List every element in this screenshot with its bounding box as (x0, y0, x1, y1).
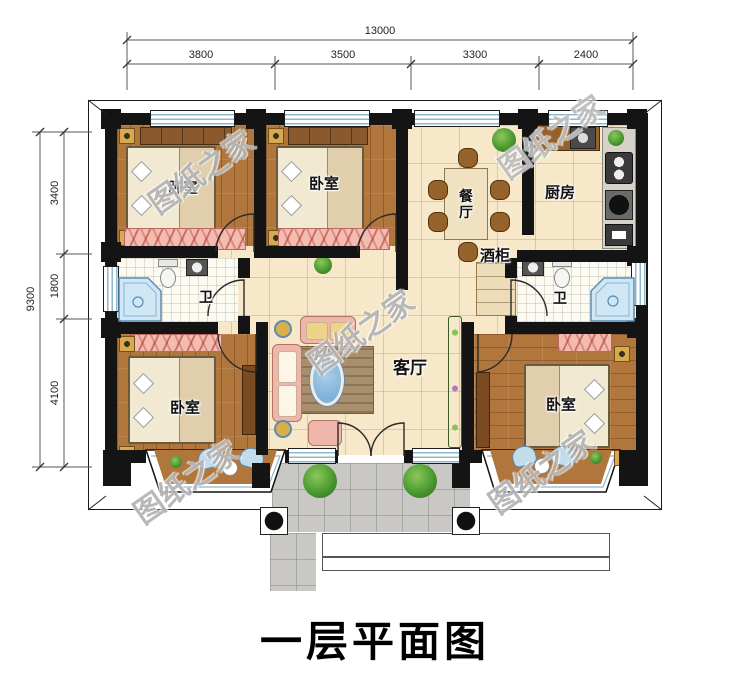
wall-bathL-right-b (238, 316, 250, 334)
floor-plan-sheet: 卧室 卧室 餐厅 厨房 酒柜 卫 卫 客厅 卧室 卧室 13000 3800 3… (0, 0, 750, 680)
nightstand (614, 346, 630, 362)
dresser (476, 372, 490, 448)
porch-bush (303, 464, 337, 498)
wall-under-bed2 (258, 246, 360, 258)
dim-top-seg-4: 2400 (572, 49, 600, 61)
nightstand (119, 128, 135, 144)
corner-pier (103, 450, 131, 486)
pillow (281, 161, 302, 182)
kitchen-basin (605, 152, 633, 184)
stove (605, 190, 633, 220)
bathroom-left-floor (117, 258, 238, 322)
kitchen-plant (608, 130, 624, 146)
entry-porch (272, 463, 470, 532)
dining-chair (490, 212, 510, 232)
pier (627, 109, 647, 129)
dining-chair (458, 148, 478, 168)
label-bathroom-right: 卫 (553, 288, 567, 308)
side-table (274, 320, 292, 338)
label-kitchen: 厨房 (545, 182, 575, 203)
label-living: 客厅 (393, 354, 427, 379)
porch-bush (403, 464, 437, 498)
pier (101, 242, 121, 262)
dim-top-seg-2: 3500 (329, 49, 357, 61)
front-step-2 (322, 557, 610, 571)
wall-bed1-bed2 (254, 113, 266, 258)
wall-bathL-right-a (238, 258, 250, 278)
dim-left-seg-3: 4100 (49, 379, 61, 407)
cushion (278, 385, 297, 417)
pillow (133, 407, 154, 428)
window-living-left (288, 448, 336, 464)
dim-tick (60, 315, 68, 323)
potted-plant (314, 256, 332, 274)
side-table (274, 420, 292, 438)
dim-total-width: 13000 (363, 25, 398, 37)
dim-tick (535, 60, 543, 68)
wall-hall-bedBL (105, 322, 218, 334)
dining-chair (490, 180, 510, 200)
window-bathroom-left (103, 266, 119, 312)
dim-tick (36, 463, 44, 471)
pier (246, 109, 266, 129)
dining-chair (428, 180, 448, 200)
dresser (242, 365, 256, 435)
window-bedroom-top-middle (284, 110, 370, 127)
label-bedroom-bottom-left: 卧室 (170, 397, 200, 418)
sofa (272, 344, 302, 422)
sink (186, 259, 208, 276)
dim-left-seg-2: 1800 (49, 272, 61, 300)
wall-living-bedBL (256, 322, 268, 455)
front-step-1 (322, 533, 610, 557)
window-living-right (412, 448, 460, 464)
dim-left-seg-1: 3400 (49, 179, 61, 207)
pier (101, 109, 121, 129)
dim-top-seg-1: 3800 (187, 49, 215, 61)
dim-tick (60, 128, 68, 136)
oven (605, 224, 633, 246)
label-bedroom-bottom-right: 卧室 (546, 394, 576, 415)
dim-tick (629, 60, 637, 68)
dim-tick (123, 60, 131, 68)
nightstand (268, 128, 284, 144)
decorative-plant-strip (448, 316, 462, 448)
pillow (584, 413, 605, 434)
toilet-bowl (554, 268, 570, 288)
dim-tick (60, 250, 68, 258)
wall-bed2-dining (396, 113, 408, 290)
wall-under-bed1 (105, 246, 218, 258)
wardrobe (288, 127, 368, 145)
dim-total-height: 9300 (25, 285, 37, 313)
footstool (308, 420, 342, 446)
porch-column (452, 507, 480, 535)
dim-tick (60, 463, 68, 471)
dim-tick (36, 128, 44, 136)
label-wine-cabinet: 酒柜 (480, 245, 510, 266)
dim-tick (123, 36, 131, 44)
bedroom-rug (132, 334, 222, 352)
window-bedroom-top-left (150, 110, 235, 127)
pillow (133, 373, 154, 394)
porch-column (260, 507, 288, 535)
porch-stub (252, 463, 270, 488)
dim-tick (271, 60, 279, 68)
dining-chair (428, 212, 448, 232)
dim-tick (407, 60, 415, 68)
toilet-bowl (160, 268, 176, 288)
nightstand (119, 336, 135, 352)
label-bedroom-top-middle: 卧室 (309, 173, 339, 194)
dim-top-seg-3: 3300 (461, 49, 489, 61)
label-dining: 餐厅 (457, 188, 475, 220)
wall-living-bedBR (462, 322, 474, 455)
cushion (278, 351, 297, 383)
pier (627, 318, 647, 338)
porch-side-steps (270, 533, 316, 591)
pier (101, 318, 121, 338)
corner-pier (619, 450, 648, 486)
pier (392, 109, 412, 129)
window-bathroom-right (631, 262, 647, 306)
toilet-tank (158, 259, 178, 267)
label-bathroom-left: 卫 (199, 287, 213, 307)
window-dining (414, 110, 500, 127)
sheet-title: 一层平面图 (260, 608, 490, 669)
dim-tick (629, 36, 637, 44)
porch-stub (452, 463, 470, 488)
dining-chair (458, 242, 478, 262)
pillow (584, 379, 605, 400)
pillow (281, 195, 302, 216)
